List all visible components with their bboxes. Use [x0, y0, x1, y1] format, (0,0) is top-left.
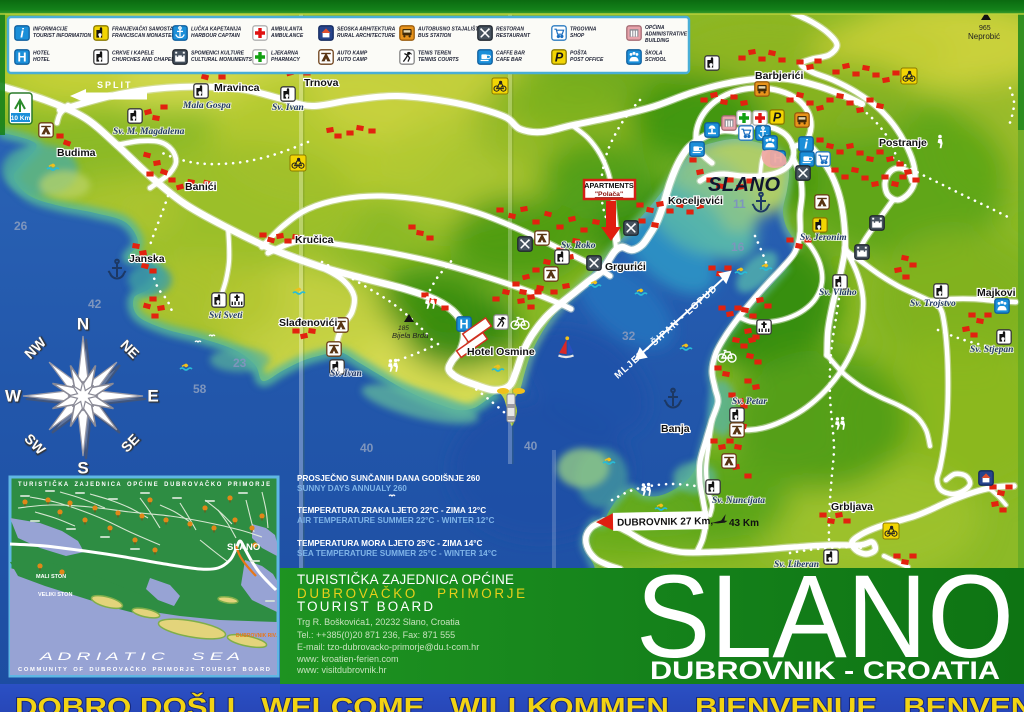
svg-text:TENIS TEREN: TENIS TEREN — [418, 51, 451, 57]
svg-text:42: 42 — [88, 297, 102, 311]
svg-text:Sv. Petar: Sv. Petar — [732, 397, 767, 407]
svg-text:Sv. M. Magdalena: Sv. M. Magdalena — [113, 127, 185, 137]
svg-text:CAFFE BAR: CAFFE BAR — [496, 51, 525, 57]
svg-text:SEA TEMPERATURE SUMMER 25°C: SEA TEMPERATURE SUMMER 25°C - WINTER 14°… — [297, 549, 497, 558]
svg-text:Sv. Jeronim: Sv. Jeronim — [800, 233, 847, 243]
svg-text:Postranje: Postranje — [879, 137, 927, 149]
svg-text:SEOSKA ARHITEKTURA: SEOSKA ARHITEKTURA — [337, 27, 396, 33]
svg-text:RURAL ARCHITECTURE: RURAL ARCHITECTURE — [337, 33, 396, 39]
svg-text:FRANCISCAN MONASTERY: FRANCISCAN MONASTERY — [112, 33, 179, 39]
svg-text:W: W — [5, 387, 22, 406]
svg-text:T U R I S T I Č K A Z A J E: T U R I S T I Č K A Z A J E D N I C A O … — [18, 480, 270, 488]
svg-text:CRKVE I KAPELE: CRKVE I KAPELE — [112, 51, 155, 57]
svg-text:POST OFFICE: POST OFFICE — [570, 57, 604, 63]
svg-text:E: E — [147, 387, 158, 406]
svg-text:Budima: Budima — [57, 147, 96, 159]
svg-text:Grgurići: Grgurići — [605, 261, 646, 273]
svg-text:SPOMENICI KULTURE: SPOMENICI KULTURE — [191, 51, 245, 57]
svg-text:HOTEL: HOTEL — [33, 57, 50, 63]
svg-text:DOBRO DOŠLI WELCOME WILLKO: DOBRO DOŠLI WELCOME WILLKOMMEN BIENVENUE… — [15, 692, 1024, 712]
svg-text:Neprobić: Neprobić — [968, 32, 1000, 41]
svg-text:AUTO CAMP: AUTO CAMP — [336, 57, 368, 63]
svg-text:AUTOBUSNO STAJALIŠTE: AUTOBUSNO STAJALIŠTE — [417, 25, 482, 33]
svg-text:FRANJEVAČKI SAMOSTAN: FRANJEVAČKI SAMOSTAN — [112, 25, 177, 33]
svg-text:40: 40 — [360, 441, 374, 455]
svg-text:DUBROVNIK - CROATIA: DUBROVNIK - CROATIA — [650, 657, 1000, 685]
svg-text:CAFE BAR: CAFE BAR — [496, 57, 522, 63]
svg-text:PROSJEČNO SUNČANIH DANA GODIŠ: PROSJEČNO SUNČANIH DANA GODIŠNJE 260 — [297, 472, 480, 483]
svg-text:11: 11 — [733, 197, 746, 211]
svg-text:PHARMACY: PHARMACY — [271, 57, 301, 63]
svg-text:AMBULANCE: AMBULANCE — [270, 33, 304, 39]
svg-text:Banja: Banja — [661, 423, 690, 435]
svg-text:POŠTA: POŠTA — [570, 49, 587, 57]
svg-text:ADMINISTRATIVE: ADMINISTRATIVE — [644, 32, 688, 38]
svg-text:Grbljava: Grbljava — [831, 501, 873, 513]
svg-text:Mravinca: Mravinca — [214, 82, 260, 94]
svg-text:www: kroatien-ferien.com: www: kroatien-ferien.com — [296, 654, 399, 664]
svg-text:S: S — [77, 459, 88, 478]
svg-text:HOTEL: HOTEL — [33, 51, 50, 57]
svg-text:LUČKA KAPETANIJA: LUČKA KAPETANIJA — [191, 25, 242, 33]
svg-text:23: 23 — [233, 356, 247, 370]
svg-text:Sv. Ivan: Sv. Ivan — [330, 369, 362, 379]
svg-text:SUNNY DAYS ANNUALY 260: SUNNY DAYS ANNUALY 260 — [297, 484, 407, 493]
svg-text:AMBULANTA: AMBULANTA — [270, 27, 303, 33]
svg-text:Sv. Stjepan: Sv. Stjepan — [970, 345, 1013, 355]
svg-text:TURISTIČKA ZAJEDNICA OPĆINE: TURISTIČKA ZAJEDNICA OPĆINE — [297, 572, 515, 587]
svg-text:DUBROVNIK 27 Km,: DUBROVNIK 27 Km, — [617, 516, 714, 529]
svg-text:SLANO: SLANO — [708, 174, 781, 196]
svg-text:Sv. Vlaho: Sv. Vlaho — [819, 288, 857, 298]
svg-text:HARBOUR CAPTAIN: HARBOUR CAPTAIN — [191, 33, 240, 39]
svg-text:Koceljevići: Koceljevići — [668, 195, 723, 207]
svg-text:40: 40 — [524, 439, 538, 453]
svg-text:RESTAURANT: RESTAURANT — [496, 33, 531, 39]
svg-text:Mala Gospa: Mala Gospa — [182, 101, 231, 111]
svg-text:TEMPERATURA ZRAKA LJETO 22°: TEMPERATURA ZRAKA LJETO 22°C - ZIMA 12°C — [297, 506, 486, 515]
svg-text:10 Km: 10 Km — [11, 115, 31, 122]
svg-text:Svi Sveti: Svi Sveti — [209, 311, 243, 321]
svg-text:58: 58 — [193, 382, 207, 396]
svg-text:ŠKOLA: ŠKOLA — [645, 49, 663, 57]
svg-text:43 Km: 43 Km — [729, 518, 759, 529]
svg-text:MALI STON: MALI STON — [36, 574, 66, 580]
svg-text:Kručica: Kručica — [295, 234, 334, 246]
svg-text:BUS STATION: BUS STATION — [418, 33, 452, 39]
svg-text:Tel.: ++385(0)20 871 236, Fax:: Tel.: ++385(0)20 871 236, Fax: 871 555 — [297, 630, 455, 640]
svg-text:INFORMACIJE: INFORMACIJE — [33, 27, 68, 33]
svg-text:Janska: Janska — [129, 253, 165, 265]
svg-text:A D R I A T I C S E A: A D R I A T I C S E A — [38, 651, 240, 663]
svg-text:Banići: Banići — [185, 181, 217, 193]
svg-text:965: 965 — [979, 25, 991, 32]
svg-text:16: 16 — [731, 240, 745, 254]
svg-text:E-mail: tzo-dubrovacko-primorj: E-mail: tzo-dubrovacko-primorje@du.t-com… — [297, 642, 479, 652]
svg-text:Sv. Roko: Sv. Roko — [561, 241, 596, 251]
svg-text:APARTMENTS: APARTMENTS — [584, 181, 634, 190]
svg-text:AUTO KAMP: AUTO KAMP — [336, 51, 368, 57]
svg-text:SLANO: SLANO — [227, 542, 260, 553]
svg-text:www: visitdubrovnik.hr: www: visitdubrovnik.hr — [296, 665, 387, 675]
svg-text:AIR TEMPERATURE SUMMER 22°C: AIR TEMPERATURE SUMMER 22°C - WINTER 12°… — [297, 516, 495, 525]
svg-text:Sv. Nuncijata: Sv. Nuncijata — [712, 496, 765, 506]
svg-text:SPLIT: SPLIT — [97, 80, 133, 90]
svg-text:TEMPERATURA MORA LJETO 25°C: TEMPERATURA MORA LJETO 25°C - ZIMA 14°C — [297, 539, 483, 548]
svg-text:Bijela Brda: Bijela Brda — [392, 331, 428, 340]
svg-text:OPĆINA: OPĆINA — [645, 24, 665, 31]
svg-text:32: 32 — [622, 329, 636, 343]
svg-text:Sv. Trojstvo: Sv. Trojstvo — [910, 299, 956, 309]
svg-text:LJEKARNA: LJEKARNA — [271, 51, 299, 57]
svg-text:VELIKI STON: VELIKI STON — [38, 592, 72, 598]
svg-text:"Polača": "Polača" — [595, 191, 623, 198]
svg-text:Barbjerići: Barbjerići — [755, 70, 804, 82]
svg-text:RESTORAN: RESTORAN — [496, 27, 524, 33]
svg-text:SHOP: SHOP — [570, 33, 585, 39]
svg-text:Trnova: Trnova — [304, 77, 339, 89]
svg-text:Hotel Osmine: Hotel Osmine — [467, 346, 535, 358]
svg-text:C O M M U N I T Y O F D: C O M M U N I T Y O F D U B R O V A Č K … — [18, 666, 270, 673]
svg-text:TOURIST INFORMATION: TOURIST INFORMATION — [33, 33, 92, 39]
svg-text:Sv. Ivan: Sv. Ivan — [272, 103, 304, 113]
svg-text:26: 26 — [14, 219, 28, 233]
svg-text:Trg R. Boškovića1, 20232 Slano: Trg R. Boškovića1, 20232 Slano, Croatia — [297, 617, 460, 627]
svg-text:CULTURAL MONUMENTS: CULTURAL MONUMENTS — [191, 57, 253, 63]
svg-text:CHURCHES AND CHAPELS: CHURCHES AND CHAPELS — [112, 57, 178, 63]
svg-text:BUILDING: BUILDING — [645, 38, 669, 44]
svg-text:DUBROVNIK RIV.: DUBROVNIK RIV. — [236, 633, 278, 639]
svg-text:Majkovi: Majkovi — [977, 287, 1016, 299]
svg-text:TRGOVINA: TRGOVINA — [570, 27, 597, 33]
svg-text:SCHOOL: SCHOOL — [645, 57, 666, 63]
svg-text:TOURIST BOARD: TOURIST BOARD — [297, 599, 435, 614]
svg-text:Slađenovići: Slađenovići — [279, 317, 337, 329]
svg-text:TENNIS COURTS: TENNIS COURTS — [418, 57, 459, 63]
svg-text:N: N — [77, 315, 89, 334]
